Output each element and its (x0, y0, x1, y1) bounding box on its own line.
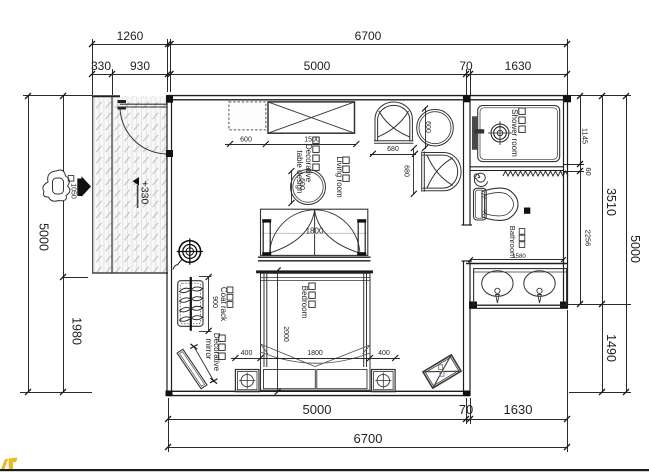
svg-text:Bedroom: Bedroom (300, 286, 309, 319)
svg-text:5000: 5000 (37, 223, 51, 251)
svg-text:1260: 1260 (117, 29, 144, 43)
svg-text:Living room: Living room (335, 156, 344, 198)
svg-text:1500: 1500 (304, 137, 320, 144)
svg-text:Coat rack: Coat rack (219, 287, 228, 322)
svg-text:70: 70 (459, 59, 473, 73)
svg-text:1800: 1800 (307, 350, 323, 357)
svg-text:1145: 1145 (581, 128, 590, 144)
svg-text:600: 600 (240, 137, 252, 144)
svg-text:table design: table design (295, 150, 304, 193)
svg-text:900: 900 (211, 296, 218, 308)
svg-text:70: 70 (459, 402, 473, 417)
svg-text:3510: 3510 (604, 188, 618, 216)
svg-text:600: 600 (424, 121, 431, 133)
svg-text:330: 330 (91, 59, 111, 73)
svg-text:1800: 1800 (306, 227, 324, 236)
svg-text:680: 680 (387, 146, 399, 153)
svg-text:1580: 1580 (512, 254, 526, 260)
svg-text:930: 930 (130, 59, 150, 73)
svg-text:6700: 6700 (355, 29, 382, 43)
svg-text:1630: 1630 (504, 402, 533, 417)
svg-text:5000: 5000 (303, 402, 332, 417)
svg-text:6700: 6700 (354, 431, 383, 446)
svg-text:5000: 5000 (628, 235, 642, 263)
svg-text:2256: 2256 (584, 230, 593, 247)
svg-text:680: 680 (403, 165, 410, 177)
svg-text:60: 60 (584, 167, 593, 175)
svg-text:5000: 5000 (304, 59, 331, 73)
svg-text:400: 400 (241, 350, 253, 357)
svg-text:1980: 1980 (70, 317, 84, 345)
svg-text:1490: 1490 (604, 334, 618, 362)
svg-text:1050: 1050 (69, 183, 76, 199)
svg-text:1630: 1630 (505, 59, 532, 73)
svg-text:Shower room: Shower room (510, 109, 519, 157)
svg-text:mirror: mirror (204, 339, 213, 360)
svg-text:2000: 2000 (282, 326, 289, 342)
svg-text:400: 400 (378, 350, 390, 357)
svg-text:+330: +330 (139, 181, 151, 205)
svg-text:Decorative: Decorative (304, 144, 313, 183)
